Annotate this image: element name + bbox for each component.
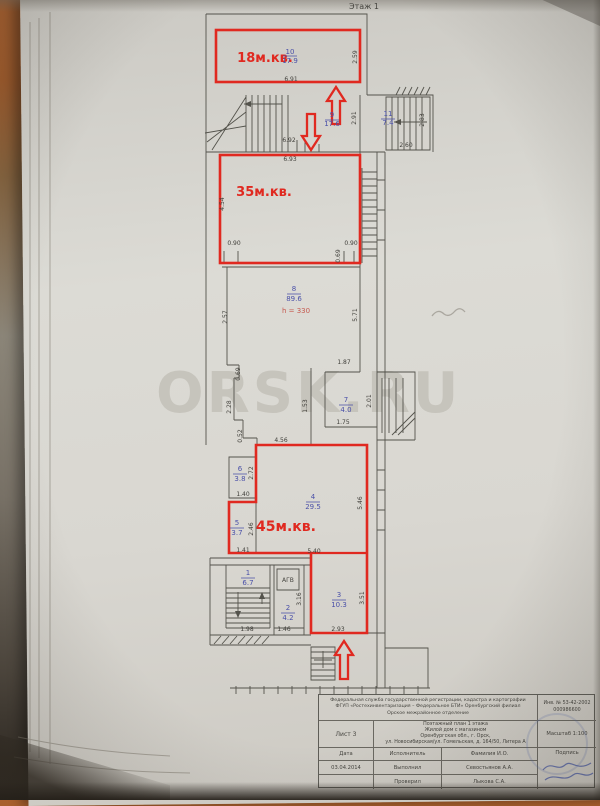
- dim-label: 0.69: [335, 249, 342, 263]
- room-number: 9: [330, 111, 334, 119]
- room-area: 89.6: [286, 295, 302, 303]
- scale-cell: Масштаб 1:100: [538, 721, 596, 748]
- room-number: 10: [286, 48, 295, 56]
- room-area: 3.8: [234, 475, 245, 483]
- dim-label: 0.90: [227, 240, 241, 247]
- object-line-4: ул. Новосибирская/ул. Гомельская, д. 164…: [385, 740, 525, 746]
- row2-role-cell: Проверил: [374, 775, 442, 789]
- dim-label: 5.46: [357, 496, 364, 510]
- room-area: 17.6: [324, 120, 340, 128]
- name-header-cell: Фамилия И.О.: [442, 748, 538, 761]
- room-area: 10.3: [331, 601, 347, 609]
- object-cell: Поэтажный план 1 этажа Жилой дом с магаз…: [374, 721, 538, 748]
- dim-label: 6.92: [282, 137, 296, 144]
- dim-label: 2.01: [366, 394, 373, 408]
- dim-label: 5.71: [352, 308, 359, 322]
- inventory-code: 000986600: [553, 708, 580, 715]
- room-area: 3.7: [231, 529, 242, 537]
- name-header: Фамилия И.О.: [471, 751, 509, 757]
- dim-label: 2.46: [248, 522, 255, 536]
- room-number: 8: [292, 285, 296, 293]
- dim-label: 0.90: [344, 240, 358, 247]
- room-area: 7.4: [382, 119, 394, 127]
- date-header: Дата: [339, 751, 352, 757]
- dim-label: 4.54: [219, 197, 226, 211]
- dim-label: 1.87: [337, 359, 351, 366]
- dim-label: 1.53: [302, 399, 309, 413]
- dim-label: 1.98: [240, 626, 254, 633]
- room-area: 4.0: [340, 406, 351, 414]
- room-area: 6.7: [242, 579, 253, 587]
- dim-label: 0.52: [237, 429, 244, 443]
- pencil-note-scribble: [432, 309, 465, 316]
- scale-value: Масштаб 1:100: [546, 731, 587, 737]
- dim-label: 0.69: [235, 367, 242, 381]
- signature-scribble: [539, 756, 595, 786]
- red-arrow-entry-icon: [335, 641, 353, 679]
- dim-label: 4.56: [274, 437, 288, 444]
- row1-name: Севостьянов А.А.: [466, 765, 513, 771]
- inventory-number: Инв. № 53-42-2002: [544, 701, 591, 708]
- dim-label: 5.40: [307, 548, 321, 555]
- room-area: 4.2: [282, 614, 293, 622]
- date-value-cell: 03.04.2014: [319, 761, 374, 775]
- dim-label: 2.93: [331, 626, 345, 633]
- dim-label: 2.28: [226, 400, 233, 414]
- floor-plan-drawing: ORSK.RU Этаж 1 18м.кв. 35м.кв. 45м.кв. h…: [0, 0, 600, 800]
- signature-cell: Подпись: [538, 748, 596, 789]
- org-line-3: Орское межрайонное отделение: [387, 711, 469, 717]
- org-cell: Федеральная служба государственной регис…: [319, 695, 538, 721]
- stair-direction-arrows: [238, 104, 427, 616]
- floor-label: Этаж 1: [349, 2, 379, 11]
- role-header-cell: Исполнитель: [374, 748, 442, 761]
- dim-label: 3.16: [296, 592, 303, 606]
- dim-label: 2.57: [222, 310, 229, 324]
- boiler-label: АГВ: [282, 577, 294, 584]
- dim-label: 6.91: [284, 76, 298, 83]
- dim-label: 2.60: [399, 142, 413, 149]
- wall-lines: [205, 14, 433, 694]
- date-header-cell: Дата: [319, 748, 374, 761]
- red-outline-room35: [220, 155, 360, 263]
- sheet-number: Лист 3: [336, 731, 357, 738]
- dim-label: 2.59: [352, 50, 359, 64]
- title-block: Федеральная служба государственной регис…: [318, 694, 595, 788]
- room-number: 5: [235, 519, 239, 527]
- row1-role: Выполнил: [394, 765, 422, 771]
- ceiling-height-note: h = 330: [282, 307, 310, 315]
- room-number: 7: [344, 396, 348, 404]
- room-number: 11: [384, 110, 393, 118]
- room-area: 17.9: [282, 57, 298, 65]
- dim-label: 1.46: [277, 626, 291, 633]
- outer-walls: [206, 14, 433, 688]
- sheet-cell: Лист 3: [319, 721, 374, 748]
- row1-role-cell: Выполнил: [374, 761, 442, 775]
- room-number: 3: [337, 591, 341, 599]
- dim-label: 1.40: [236, 491, 250, 498]
- area-annotation-35: 35м.кв.: [236, 185, 292, 200]
- dim-label: 1.41: [236, 547, 250, 554]
- row2-name-cell: Лыкова С.А.: [442, 775, 538, 789]
- dim-label: 3.51: [359, 591, 366, 605]
- row1-name-cell: Севостьянов А.А.: [442, 761, 538, 775]
- room-number: 4: [311, 493, 316, 501]
- dim-label: 2.91: [351, 111, 358, 125]
- row2-role: Проверил: [394, 779, 421, 785]
- role-header: Исполнитель: [390, 751, 426, 757]
- dim-label: 6.93: [283, 156, 297, 163]
- room-number: 1: [246, 569, 250, 577]
- row2-name: Лыкова С.А.: [473, 779, 506, 785]
- room-number: 6: [238, 465, 243, 473]
- dim-label: 2.83: [419, 113, 426, 127]
- date-value: 03.04.2014: [331, 765, 361, 771]
- area-annotation-45: 45м.кв.: [256, 519, 316, 535]
- inventory-number-cell: Инв. № 53-42-2002 000986600: [538, 695, 596, 721]
- dimension-labels: 6.91 2.59 6.92 2.91 2.60 2.83 6.93 4.54 …: [219, 50, 426, 633]
- row2-empty-cell: [319, 775, 374, 789]
- room-area: 29.5: [305, 503, 321, 511]
- dim-label: 2.72: [248, 466, 255, 480]
- watermark-text: ORSK.RU: [156, 361, 461, 426]
- dim-label: 1.75: [336, 419, 350, 426]
- room-number: 2: [286, 604, 290, 612]
